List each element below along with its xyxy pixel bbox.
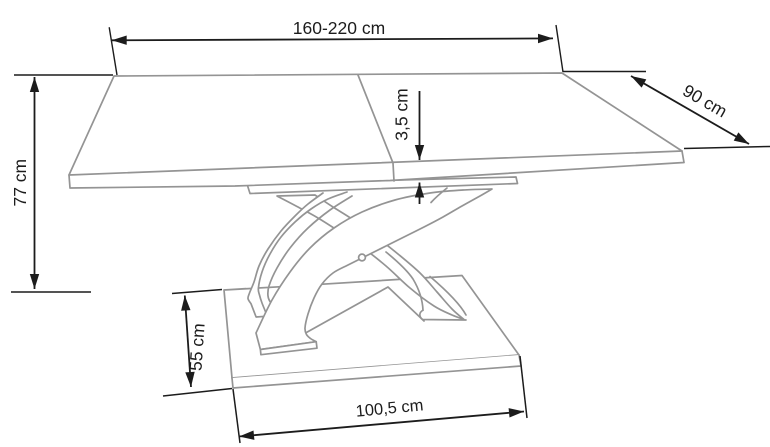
svg-text:160-220 cm: 160-220 cm <box>293 18 385 38</box>
svg-text:55 cm: 55 cm <box>185 323 208 372</box>
svg-text:100,5 cm: 100,5 cm <box>355 396 424 420</box>
svg-text:77 cm: 77 cm <box>10 159 30 207</box>
svg-text:3,5 cm: 3,5 cm <box>392 88 412 141</box>
svg-text:90 cm: 90 cm <box>679 80 730 121</box>
